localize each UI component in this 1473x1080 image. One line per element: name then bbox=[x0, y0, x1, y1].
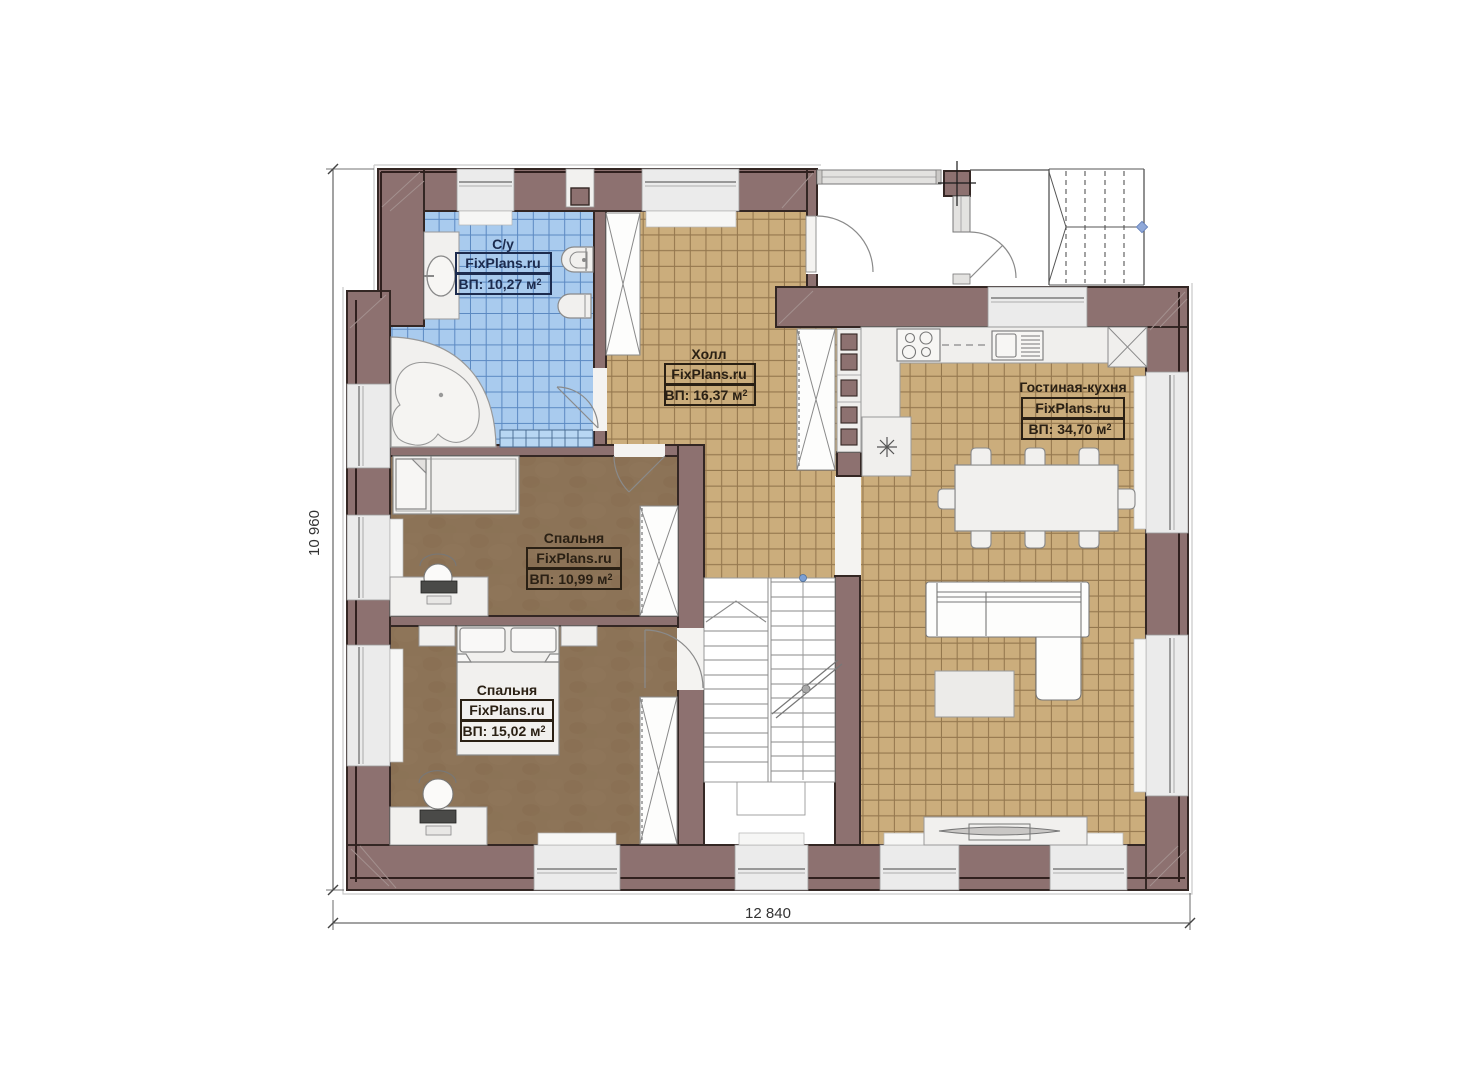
svg-text:ВП: 10,99 м2: ВП: 10,99 м2 bbox=[529, 571, 612, 587]
svg-text:ВП: 16,37 м2: ВП: 16,37 м2 bbox=[664, 387, 747, 403]
svg-text:Гостиная-кухня: Гостиная-кухня bbox=[1019, 379, 1126, 395]
svg-text:FixPlans.ru: FixPlans.ru bbox=[469, 702, 544, 718]
svg-text:FixPlans.ru: FixPlans.ru bbox=[465, 255, 540, 271]
svg-text:FixPlans.ru: FixPlans.ru bbox=[536, 550, 611, 566]
svg-text:Холл: Холл bbox=[691, 346, 726, 362]
svg-text:Спальня: Спальня bbox=[544, 530, 604, 546]
svg-text:ВП: 15,02 м2: ВП: 15,02 м2 bbox=[462, 723, 545, 739]
svg-text:С/у: С/у bbox=[492, 236, 514, 252]
svg-text:FixPlans.ru: FixPlans.ru bbox=[1035, 400, 1110, 416]
svg-text:ВП: 10,27 м2: ВП: 10,27 м2 bbox=[458, 276, 541, 292]
svg-text:10 960: 10 960 bbox=[306, 510, 323, 556]
svg-text:12 840: 12 840 bbox=[745, 905, 791, 922]
svg-text:ВП: 34,70 м2: ВП: 34,70 м2 bbox=[1028, 421, 1111, 437]
svg-text:FixPlans.ru: FixPlans.ru bbox=[671, 366, 746, 382]
svg-text:Спальня: Спальня bbox=[477, 682, 537, 698]
